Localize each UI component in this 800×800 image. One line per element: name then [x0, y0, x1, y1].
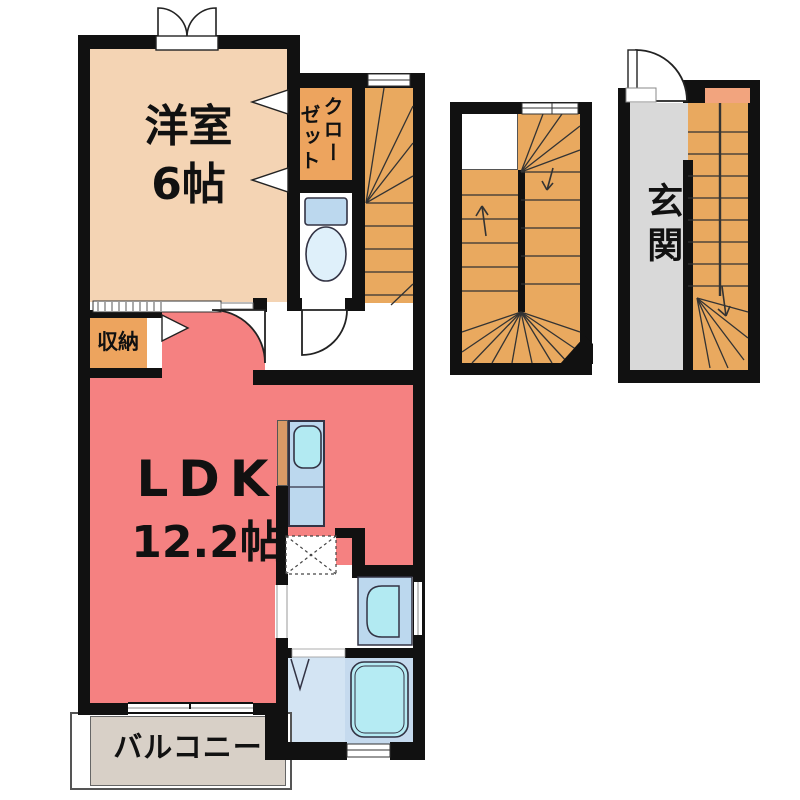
- ldk-room: [90, 565, 276, 703]
- wall: [253, 298, 267, 312]
- storage-door: [147, 318, 162, 368]
- entrance-staircase: [688, 103, 748, 370]
- wall: [618, 370, 760, 383]
- balcony-label: バルコニー: [90, 730, 286, 765]
- washroom-door: [275, 585, 289, 638]
- wall: [78, 35, 90, 715]
- ldk-label: LDK 12.2帖: [80, 447, 335, 575]
- floor-plan: 洋室 6帖 クロー ゼット 収納 LDK 12.2帖 バルコニー 玄関: [0, 0, 800, 800]
- stair-divider-wall: [518, 170, 525, 312]
- stair-landing: [705, 88, 750, 103]
- room-size: 6帖: [90, 156, 287, 214]
- wall: [300, 180, 352, 193]
- wall: [90, 368, 162, 378]
- wall: [78, 703, 128, 715]
- wall: [287, 298, 302, 311]
- wall: [618, 88, 630, 383]
- entrance-label: 玄関: [640, 182, 683, 270]
- wall: [78, 35, 300, 49]
- wall: [352, 73, 365, 305]
- stair-unit-void: [462, 114, 518, 170]
- wall: [390, 742, 425, 760]
- washroom: [288, 575, 413, 650]
- storage-label: 収納: [88, 330, 148, 355]
- wall: [345, 298, 365, 311]
- hallway: [265, 303, 413, 370]
- room-name: 洋室: [90, 98, 287, 156]
- toilet-room: [300, 193, 352, 298]
- bathtub-zone: [345, 658, 413, 744]
- entrance-door-arc: [626, 50, 687, 102]
- room-size: 12.2帖: [80, 511, 335, 575]
- closet-label: クロー: [320, 96, 344, 165]
- room-name: LDK: [80, 447, 335, 511]
- closet-label: ゼット: [297, 104, 321, 173]
- wall: [748, 80, 760, 383]
- entrance-divider-wall: [683, 160, 693, 370]
- wall: [90, 310, 162, 318]
- wall: [352, 565, 425, 577]
- wall: [253, 370, 425, 385]
- wall: [345, 648, 425, 658]
- main-staircase: [365, 88, 413, 305]
- western-room-label: 洋室 6帖: [90, 98, 287, 214]
